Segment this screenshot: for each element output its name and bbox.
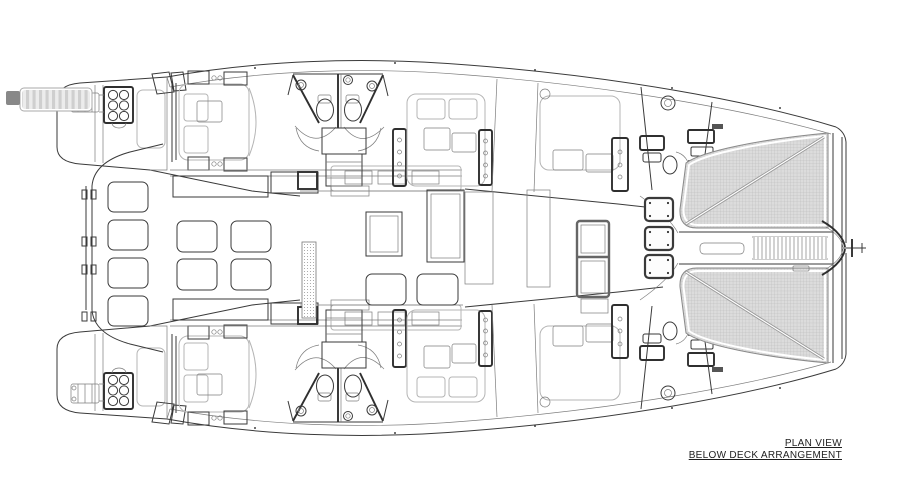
stern-rail — [82, 144, 163, 352]
catamaran-plan-svg — [0, 0, 900, 488]
saloon-table — [427, 190, 464, 262]
bowsprit — [822, 221, 866, 275]
title-block: PLAN VIEW BELOW DECK ARRANGEMENT — [689, 438, 842, 461]
bow-walkway — [679, 232, 833, 271]
galley-counter — [465, 192, 493, 284]
saloon-furniture — [302, 190, 609, 318]
foredeck-hatches — [645, 198, 673, 278]
walkway-ladder — [753, 237, 827, 259]
crossbeam — [833, 133, 842, 363]
walkway-plate — [700, 243, 744, 254]
nav-cabinet — [577, 221, 609, 313]
plan-view-label: PLAN VIEW — [689, 438, 842, 450]
passerelle — [6, 88, 92, 111]
port-hull — [57, 61, 846, 243]
cockpit-seating — [108, 182, 271, 326]
below-deck-label: BELOW DECK ARRANGEMENT — [689, 450, 842, 462]
galley-counter — [527, 190, 550, 287]
plan-drawing: PLAN VIEW BELOW DECK ARRANGEMENT — [0, 0, 900, 488]
saloon-steps — [302, 242, 316, 318]
starboard-hull — [57, 253, 846, 435]
